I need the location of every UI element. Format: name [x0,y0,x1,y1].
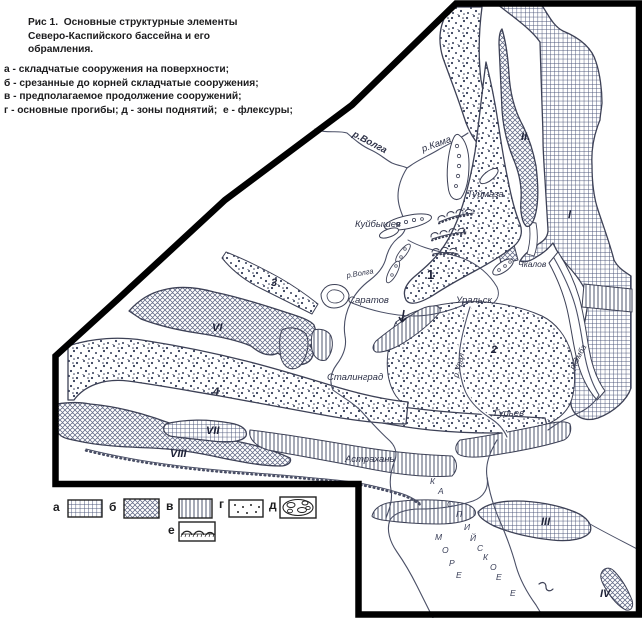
svg-text:г: г [219,497,224,511]
svg-text:2: 2 [490,344,497,356]
svg-text:Астрахань: Астрахань [344,454,395,465]
svg-text:е: е [168,523,175,537]
svg-text:Уральск: Уральск [455,295,493,306]
svg-text:VI: VI [212,322,223,334]
svg-text:С: С [447,499,454,509]
svg-text:Е: Е [510,588,516,598]
svg-text:Саратов: Саратов [348,295,389,306]
svg-text:О: О [490,562,497,572]
svg-text:р.Кама: р.Кама [419,134,452,155]
svg-text:II.: II. [521,131,530,143]
svg-text:1: 1 [427,267,434,282]
svg-text:б: б [109,500,116,514]
svg-text:3: 3 [271,277,277,289]
svg-text:р.Волга: р.Волга [350,128,389,156]
svg-text:в: в [166,499,173,513]
svg-text:VII: VII [206,425,220,437]
svg-text:Гурьев: Гурьев [494,408,524,419]
svg-text:Сталинград: Сталинград [327,372,383,383]
svg-text:О: О [442,545,449,555]
svg-text:И: И [464,522,471,532]
svg-text:4: 4 [212,386,219,398]
svg-text:Е: Е [496,572,502,582]
svg-text:р.Волга: р.Волга [345,266,374,280]
svg-text:Куйбышев: Куйбышев [355,219,401,230]
svg-text:Туймаза: Туймаза [467,189,504,200]
svg-text:К: К [483,552,489,562]
svg-text:IV: IV [600,588,612,600]
svg-text:К: К [430,476,436,486]
svg-text:Чкалов: Чкалов [518,259,547,269]
svg-text:Е: Е [456,570,462,580]
svg-text:VIII: VIII [170,448,187,460]
svg-text:а: а [53,500,60,514]
svg-text:А: А [437,486,444,496]
svg-text:М: М [435,532,443,542]
svg-text:Р: Р [449,558,455,568]
svg-text:П: П [456,509,463,519]
svg-text:д: д [269,498,277,512]
svg-text:III: III [541,516,551,528]
svg-text:Й: Й [470,532,477,543]
